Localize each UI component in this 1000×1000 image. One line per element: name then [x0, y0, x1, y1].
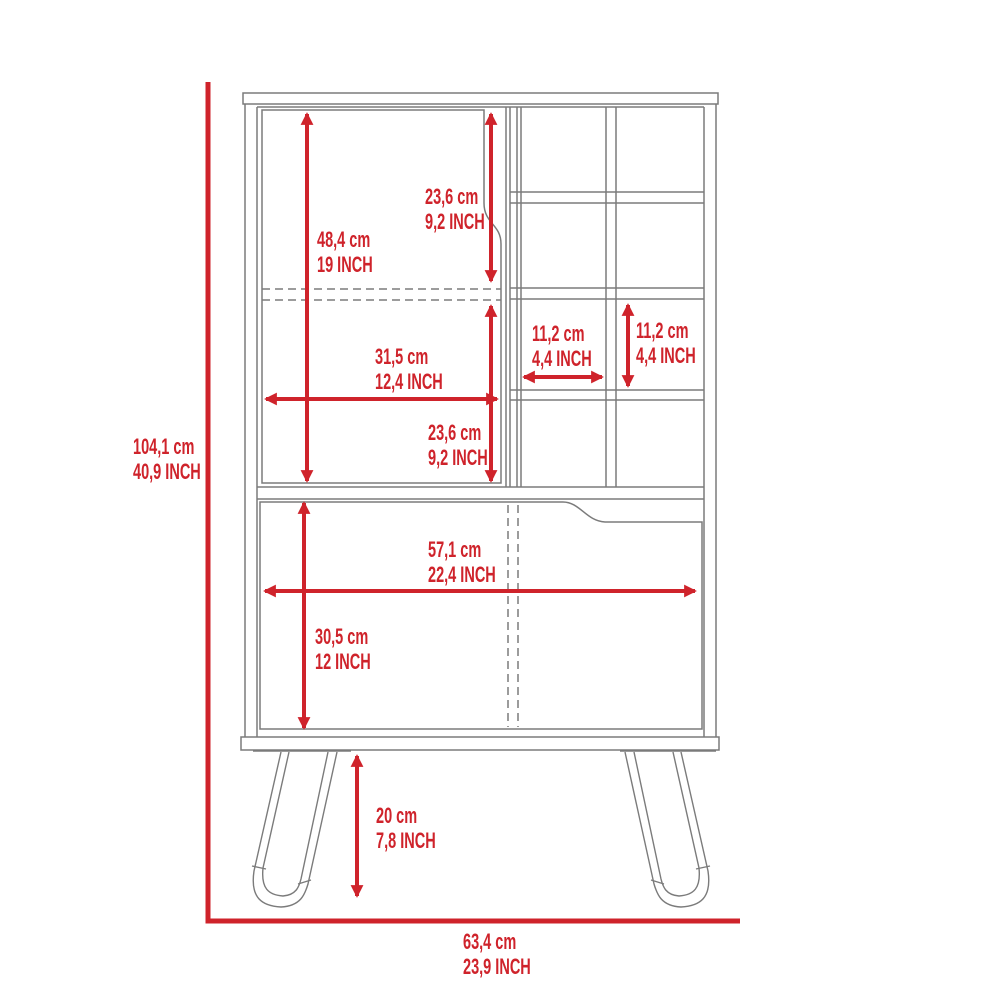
label-cubby-width-inch: 4,4 INCH	[532, 346, 592, 371]
wine-rack	[506, 107, 704, 487]
label-lower-door-width: 57,1 cm 22,4 INCH	[428, 537, 496, 587]
hairpin-leg-right	[625, 752, 710, 907]
label-upper-door-width-inch: 12,4 INCH	[375, 369, 443, 394]
label-upper-door-bottom-section-cm: 23,6 cm	[428, 420, 488, 445]
label-overall-height-inch: 40,9 INCH	[133, 459, 201, 484]
label-upper-door-top-section-cm: 23,6 cm	[425, 184, 485, 209]
label-upper-door-bottom-section-inch: 9,2 INCH	[428, 445, 488, 470]
label-lower-door-height-cm: 30,5 cm	[315, 624, 371, 649]
label-overall-width-inch: 23,9 INCH	[463, 954, 531, 979]
bottom-board	[241, 737, 719, 750]
label-lower-door-height-inch: 12 INCH	[315, 649, 371, 674]
label-upper-door-height-inch: 19 INCH	[317, 252, 373, 277]
label-upper-door-width-cm: 31,5 cm	[375, 344, 443, 369]
label-upper-door-top-section-inch: 9,2 INCH	[425, 209, 485, 234]
label-leg-height-inch: 7,8 INCH	[376, 828, 436, 853]
label-overall-height-cm: 104,1 cm	[133, 434, 201, 459]
label-leg-height: 20 cm 7,8 INCH	[376, 803, 436, 853]
label-lower-door-width-inch: 22,4 INCH	[428, 562, 496, 587]
label-cubby-height-cm: 11,2 cm	[636, 318, 696, 343]
label-cubby-height: 11,2 cm 4,4 INCH	[636, 318, 696, 368]
label-cubby-height-inch: 4,4 INCH	[636, 343, 696, 368]
label-overall-width-cm: 63,4 cm	[463, 929, 531, 954]
dimension-diagram: 104,1 cm 40,9 INCH 48,4 cm 19 INCH 23,6 …	[0, 0, 1000, 1000]
top-board	[243, 93, 718, 104]
label-cubby-width: 11,2 cm 4,4 INCH	[532, 321, 592, 371]
hairpin-leg-left	[252, 752, 337, 907]
label-lower-door-height: 30,5 cm 12 INCH	[315, 624, 371, 674]
label-upper-door-height-cm: 48,4 cm	[317, 227, 373, 252]
label-cubby-width-cm: 11,2 cm	[532, 321, 592, 346]
label-overall-height: 104,1 cm 40,9 INCH	[133, 434, 201, 484]
label-overall-width: 63,4 cm 23,9 INCH	[463, 929, 531, 979]
label-upper-door-top-section: 23,6 cm 9,2 INCH	[425, 184, 485, 234]
label-leg-height-cm: 20 cm	[376, 803, 436, 828]
label-upper-door-height: 48,4 cm 19 INCH	[317, 227, 373, 277]
cabinet-line-drawing	[0, 0, 1000, 1000]
label-lower-door-width-cm: 57,1 cm	[428, 537, 496, 562]
label-upper-door-bottom-section: 23,6 cm 9,2 INCH	[428, 420, 488, 470]
label-upper-door-width: 31,5 cm 12,4 INCH	[375, 344, 443, 394]
